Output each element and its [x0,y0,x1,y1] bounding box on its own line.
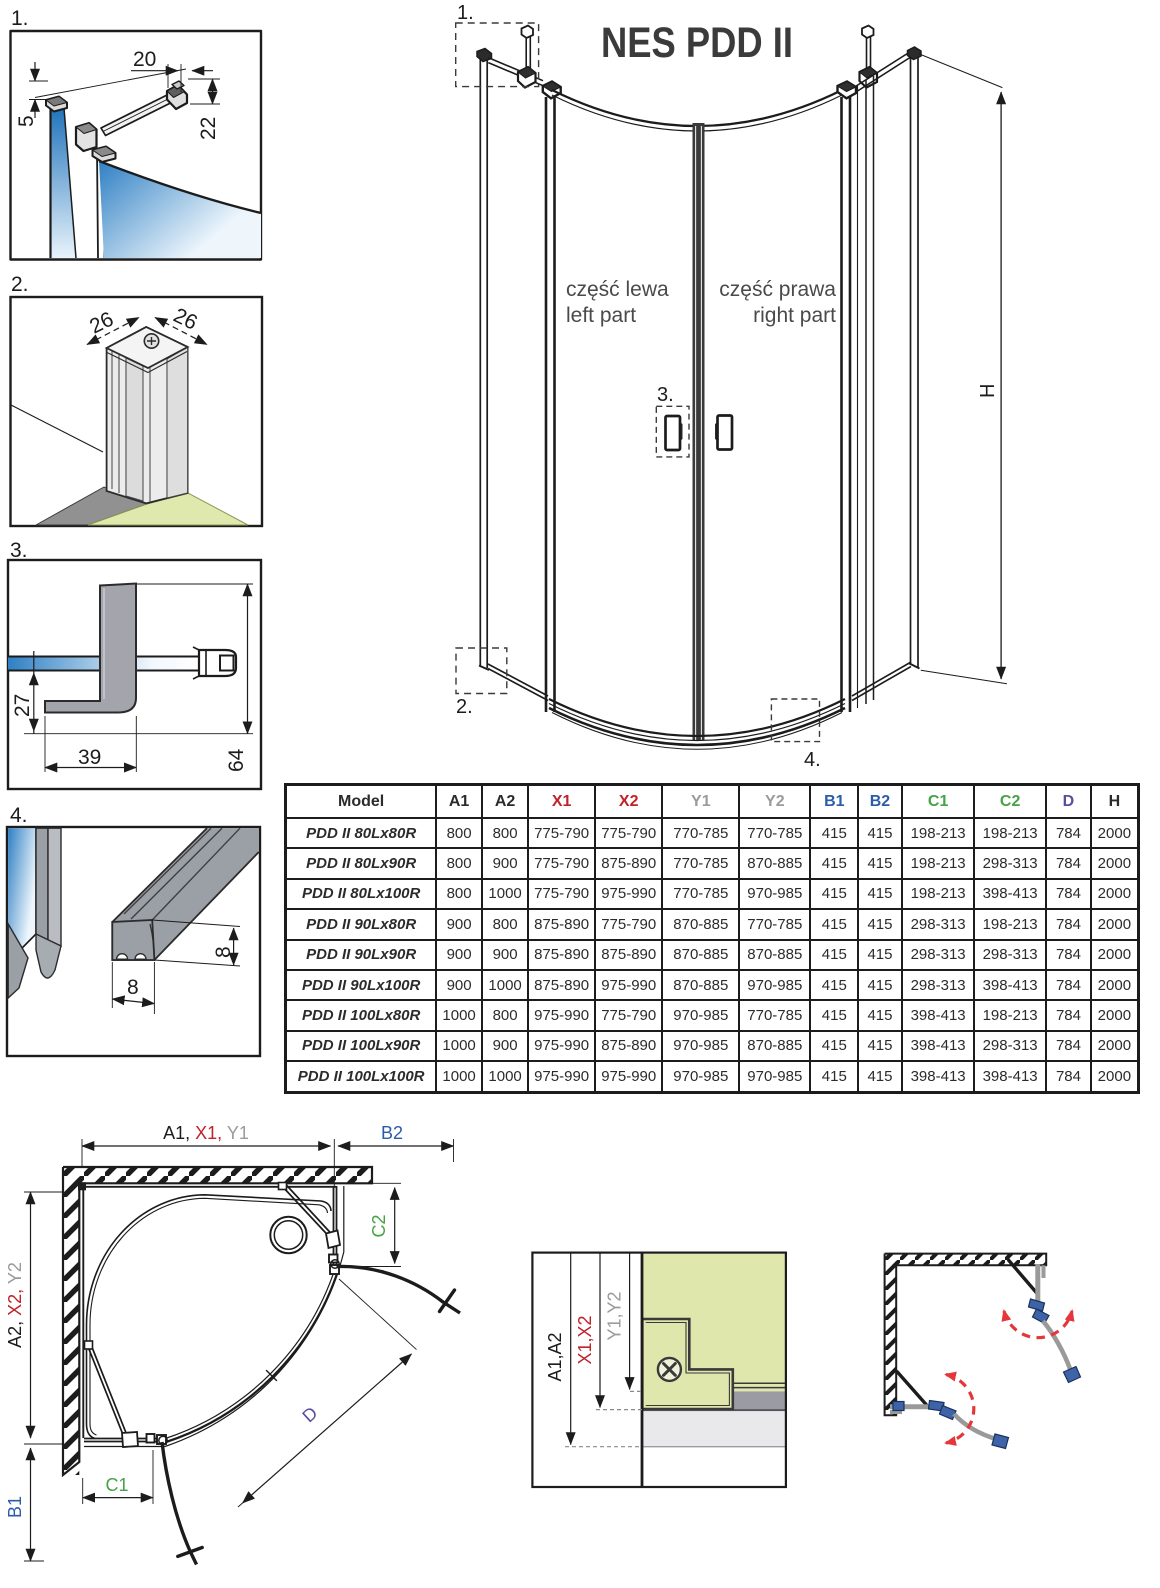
svg-text:część lewa: część lewa [566,278,669,301]
svg-text:64: 64 [225,748,248,772]
svg-text:A2, X2, Y2: A2, X2, Y2 [5,1262,25,1348]
svg-text:2.: 2. [456,696,473,718]
svg-text:2.: 2. [11,273,29,296]
svg-text:X1,X2: X1,X2 [575,1315,595,1364]
svg-text:Y1,Y2: Y1,Y2 [605,1291,625,1340]
svg-text:A1,A2: A1,A2 [545,1332,565,1381]
svg-text:5: 5 [15,115,38,127]
svg-text:H: H [977,384,999,398]
svg-text:B1: B1 [5,1496,25,1518]
svg-text:8: 8 [212,946,235,958]
svg-text:C1: C1 [105,1475,128,1495]
svg-text:39: 39 [78,746,101,769]
svg-text:B2: B2 [381,1123,403,1143]
svg-text:NES PDD II: NES PDD II [601,19,793,67]
svg-text:22: 22 [197,117,220,140]
svg-text:27: 27 [11,694,34,717]
svg-text:1.: 1. [11,7,29,30]
svg-text:20: 20 [133,48,156,71]
svg-text:right part: right part [753,304,836,327]
svg-text:C2: C2 [369,1214,389,1237]
svg-text:left part: left part [566,304,636,327]
svg-text:część prawa: część prawa [719,278,836,301]
svg-text:4.: 4. [804,749,821,771]
svg-text:8: 8 [127,976,139,999]
svg-text:A1, X1, Y1: A1, X1, Y1 [163,1123,249,1143]
svg-text:3.: 3. [10,539,28,562]
svg-text:4.: 4. [10,804,28,827]
svg-text:3.: 3. [657,384,674,406]
svg-text:1.: 1. [457,2,474,24]
svg-text:D: D [298,1403,321,1427]
